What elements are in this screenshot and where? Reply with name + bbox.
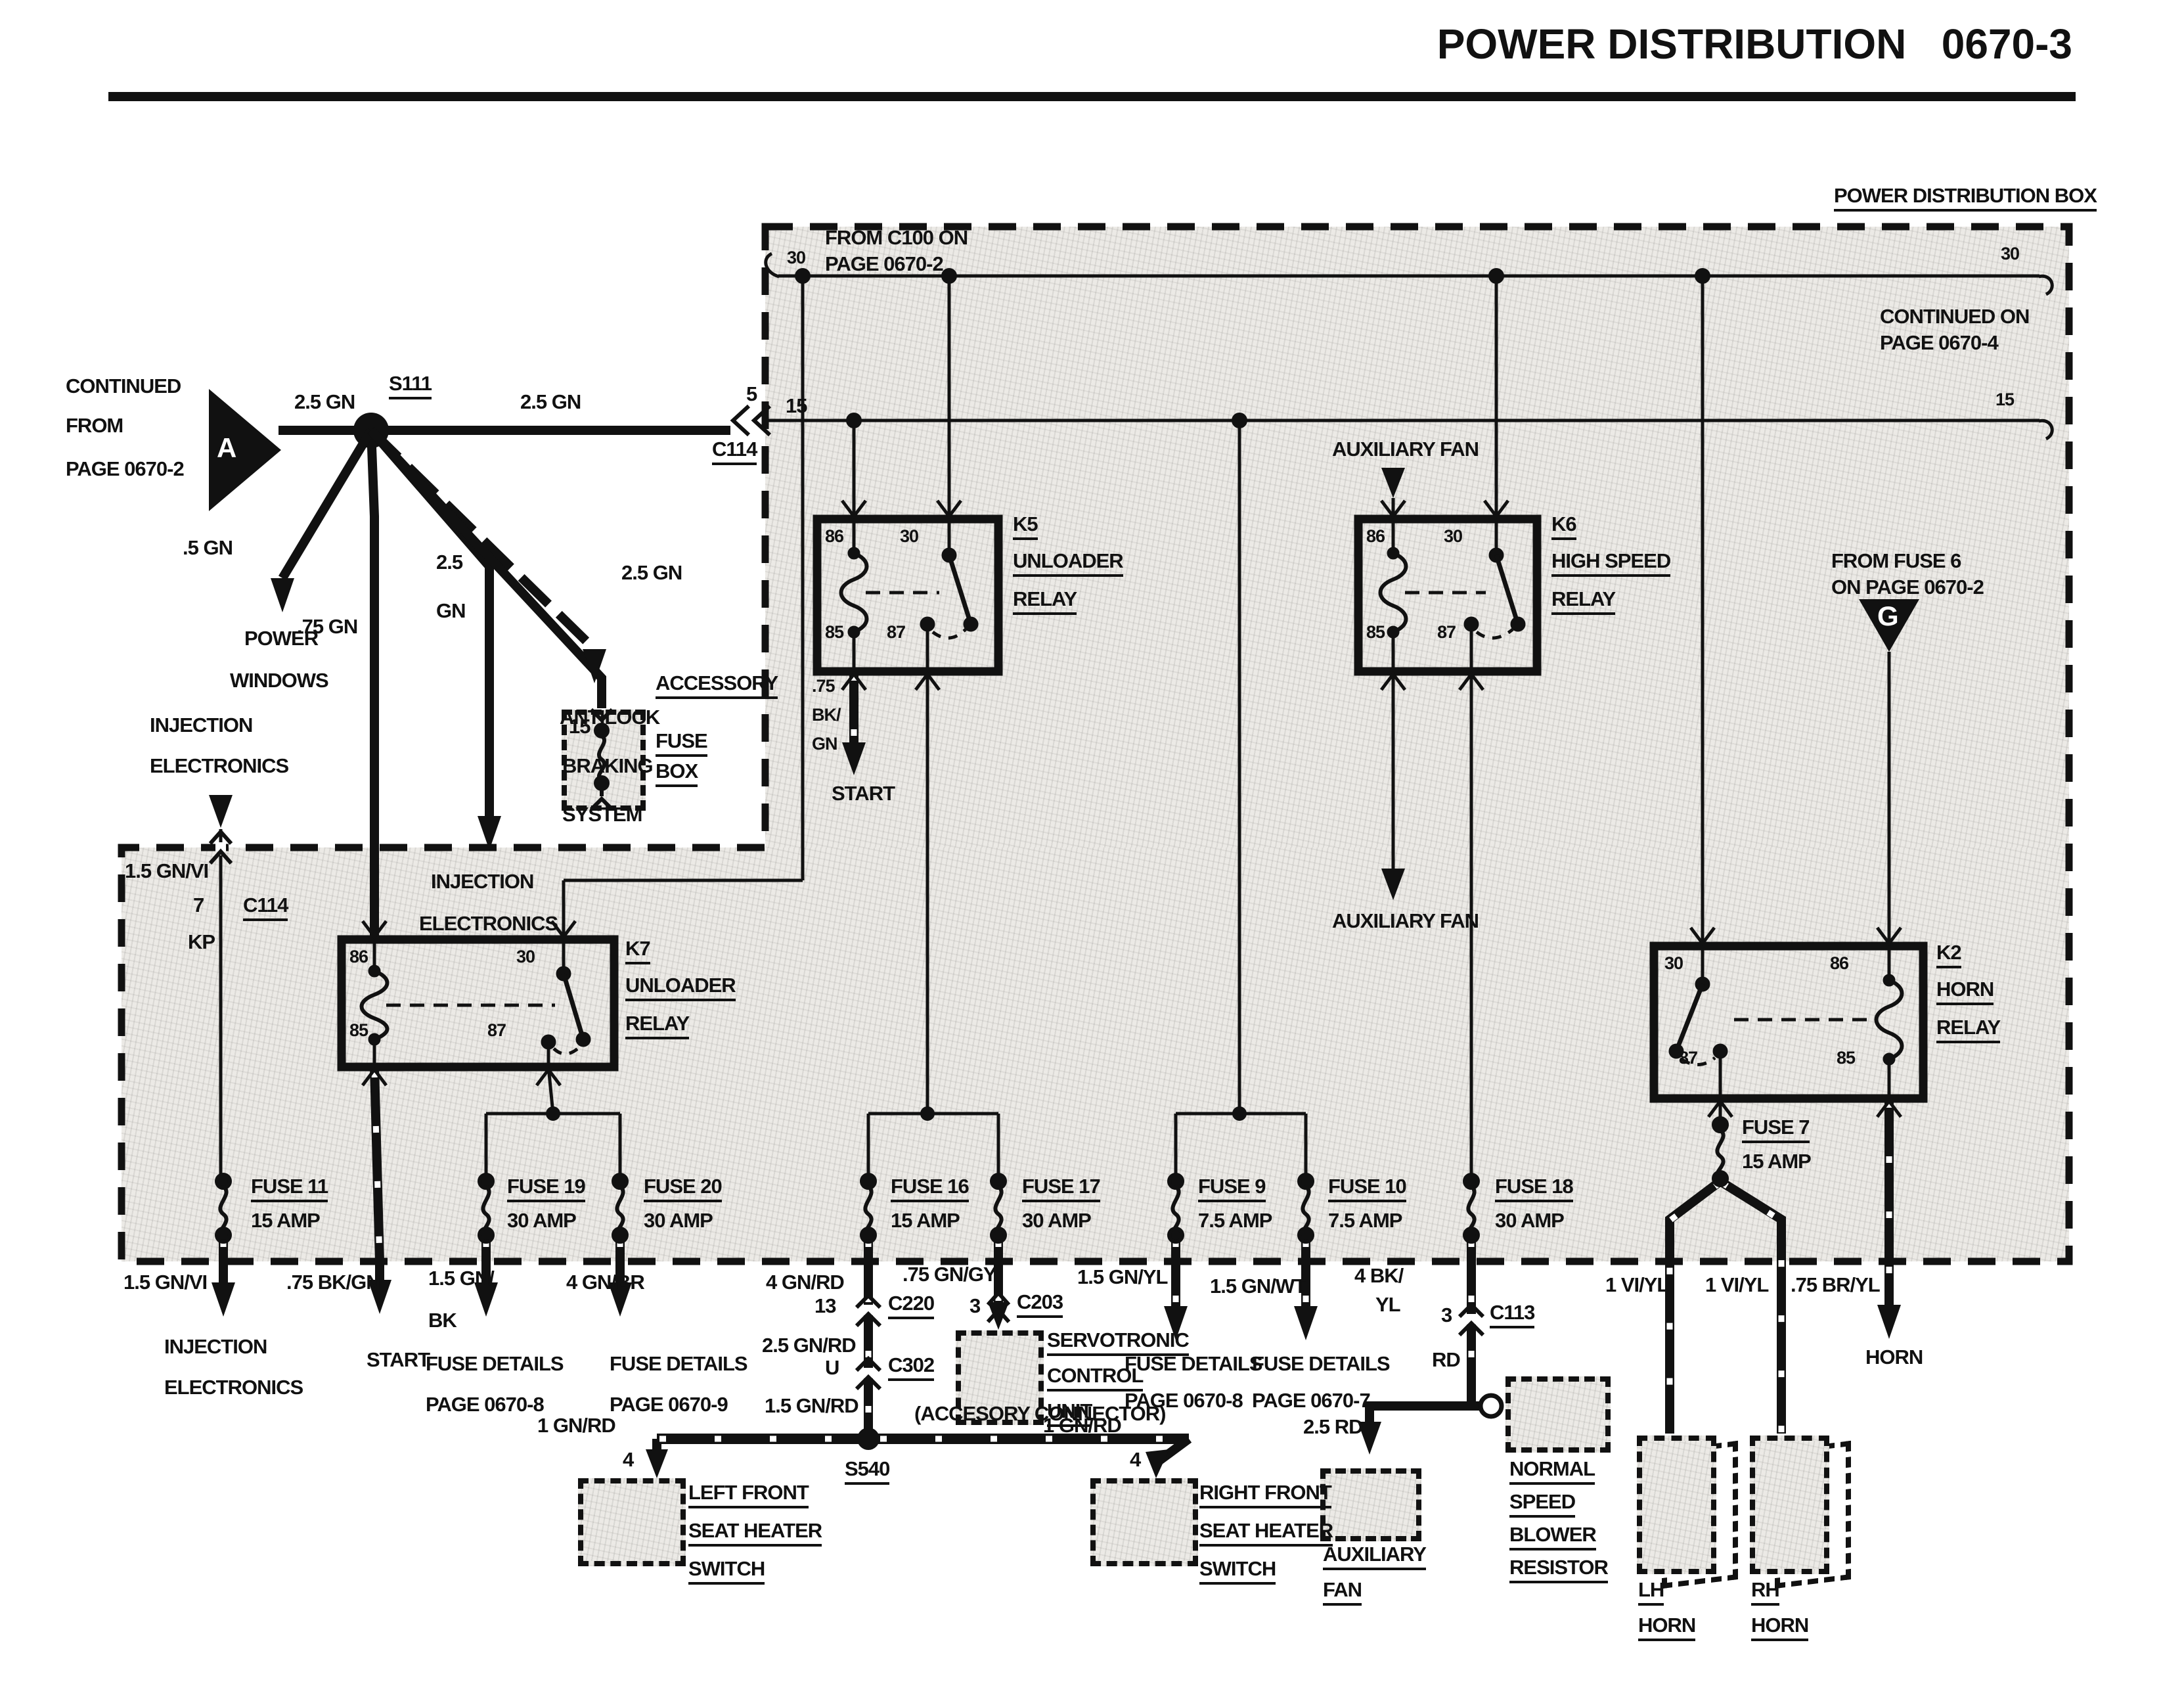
k5-out-wire-2: BK/ [812,706,841,724]
out-fuse19-wire-2: BK [428,1310,457,1332]
k6-pin85: 85 [1366,623,1385,641]
fuse17-amp: 30 AMP [1022,1210,1091,1232]
out-fuse19-wire-1: 1.5 GN/ [428,1268,494,1290]
c114-pin7-label: 7 [193,895,204,916]
out-fuse20-dest-2: PAGE 0670-9 [610,1394,728,1416]
out-fuse18-wire-1: 4 BK/ [1354,1265,1403,1287]
k6-desc-2: RELAY [1551,589,1615,615]
fuse-symbols [217,710,1727,1242]
wire-label-25gn-inj-2: GN [436,600,466,622]
wire-label-25gn-abs: 2.5 GN [621,562,682,584]
k6-name: K6 [1551,514,1576,540]
k6-auxfan-src: AUXILIARY FAN [1332,439,1479,461]
bus30-right-label: 30 [2001,244,2019,263]
c114-conn-label: C114 [712,439,757,465]
fuse-19 [479,1175,493,1242]
k5-desc-1: UNLOADER [1013,551,1123,577]
acc-fuse-box-1: ACCESSORY [656,673,778,699]
relay-k7 [342,921,614,1085]
acc-fuse-box-2: FUSE [656,731,707,757]
k2-desc-2: RELAY [1936,1017,2000,1043]
out-fuse16-wire3: 1.5 GN/RD [765,1395,858,1417]
k5-start-dest: START [832,783,895,805]
out-fuse9-dest-1: FUSE DETAILS [1125,1353,1262,1375]
k2-desc-1: HORN [1936,979,1994,1005]
fuse-11 [217,1175,230,1242]
fuse10-amp: 7.5 AMP [1328,1210,1402,1232]
fuse20-name: FUSE 20 [644,1176,722,1202]
out-fuse10-wire: 1.5 GN/WT [1210,1276,1306,1298]
seat-left-pin: 4 [623,1449,633,1471]
c220-pin: 13 [814,1296,836,1317]
inj-src-1: INJECTION [150,715,252,736]
out-fuse9-wire: 1.5 GN/YL [1077,1267,1167,1288]
injection-dest-1: INJECTION [431,871,533,893]
fuse18-amp: 30 AMP [1495,1210,1564,1232]
c113-pin: 3 [1441,1305,1452,1326]
fuse7-amp: 15 AMP [1742,1151,1811,1173]
seat-left-wire: 1 GN/RD [537,1415,615,1437]
from-fuse6-2: ON PAGE 0670-2 [1831,577,1984,599]
fuse-20 [613,1175,627,1242]
continued-from-3: PAGE 0670-2 [66,459,184,480]
blower-4: RESISTOR [1509,1557,1608,1583]
fuse-9 [1169,1175,1182,1242]
connectors [210,406,1483,1389]
from-fuse6-1: FROM FUSE 6 [1831,551,1961,572]
rh-horn-2: HORN [1751,1615,1808,1641]
marker-a-label: A [217,434,236,463]
continued-from-2: FROM [66,415,123,437]
page-title: POWER DISTRIBUTION 0670-3 [1432,22,2072,66]
fuse18-name: FUSE 18 [1495,1176,1573,1202]
k7-pin86: 86 [349,947,368,966]
fuse7-name: FUSE 7 [1742,1117,1810,1143]
k7-name: K7 [625,938,650,964]
wire-label-25gn-a: 2.5 GN [294,392,355,413]
power-box-label: POWER DISTRIBUTION BOX [1834,185,2097,212]
kp-label: KP [188,932,215,953]
blower-2: SPEED [1509,1491,1575,1518]
rh-horn-1: RH [1751,1579,1779,1606]
k5-pin30: 30 [900,527,918,545]
wire-label-75gn: .75 GN [297,616,357,638]
wire-label-15gnvi-top: 1.5 GN/VI [125,861,208,882]
k5-pin86: 86 [825,527,843,545]
c113-label: C113 [1490,1302,1534,1328]
k5-desc-2: RELAY [1013,589,1077,615]
seat-left-1: LEFT FRONT [688,1482,809,1508]
wiring-svg [0,0,2184,1697]
wire-k7-87-to-fuse19-20 [486,1067,620,1176]
wire-label-25gn-inj-1: 2.5 [436,552,462,574]
k7-desc-2: RELAY [625,1013,689,1039]
fuse17-name: FUSE 17 [1022,1176,1100,1202]
wire-fuse7-lh-horn [1670,1181,1720,1434]
k6-desc-1: HIGH SPEED [1551,551,1670,577]
fuse16-name: FUSE 16 [891,1176,969,1202]
k5-pin87: 87 [887,623,905,641]
splice-s111-label: S111 [389,373,432,399]
wire-s111-power-windows [282,430,371,578]
wire-k7-85-start [374,1067,380,1280]
out-fuse9-dest-2: PAGE 0670-8 [1125,1390,1243,1412]
fuse-16 [862,1175,875,1242]
k2-pin87: 87 [1679,1049,1697,1067]
25rd-wire-label: 2.5 RD [1303,1416,1362,1438]
wire-k5-87-to-fuse16-17 [868,671,998,1176]
from-c100-2: PAGE 0670-2 [825,254,943,275]
wire-label-5gn: .5 GN [183,537,233,559]
rh-horn-wire: 1 VI/YL [1705,1275,1768,1296]
servotronic-3: UNIT [1047,1401,1092,1427]
fuse16-amp: 15 AMP [891,1210,960,1232]
k5-out-wire-3: GN [812,735,837,753]
fuse-17 [992,1175,1005,1242]
out-fuse16-wire2: 2.5 GN/RD [762,1335,856,1357]
fuse19-amp: 30 AMP [507,1210,576,1232]
splice-s540-label: S540 [845,1459,889,1485]
c203-pin: 3 [969,1296,980,1317]
k5-pin85: 85 [825,623,843,641]
seat-right-3: SWITCH [1199,1558,1276,1585]
blower-1: NORMAL [1509,1459,1595,1485]
c220-label: C220 [888,1293,934,1319]
bus15-pin-label: 15 [786,396,807,417]
continued-on-1: CONTINUED ON [1880,306,2029,328]
seat-left-3: SWITCH [688,1558,765,1585]
k5-name: K5 [1013,514,1038,540]
k2-pin86: 86 [1830,954,1848,972]
out-start-wire: .75 BK/GN [286,1272,380,1294]
out-start-dest: START [367,1349,430,1371]
out-fuse11-dest-2: ELECTRONICS [164,1377,303,1399]
seat-left-2: SEAT HEATER [688,1520,822,1547]
c203-label: C203 [1017,1292,1063,1318]
blower-connector-circle [1481,1395,1502,1416]
k7-pin87: 87 [487,1021,506,1039]
k2-pin85: 85 [1837,1049,1855,1067]
rd-wire-label: RD [1432,1349,1460,1371]
fuse11-amp: 15 AMP [251,1210,320,1232]
fuse-18 [1465,1175,1478,1242]
out-fuse19-dest-2: PAGE 0670-8 [426,1394,544,1416]
fuse20-amp: 30 AMP [644,1210,713,1232]
seat-right-pin: 4 [1130,1449,1140,1471]
out-fuse20-wire: 4 GN/BR [566,1272,644,1294]
k7-pin85: 85 [349,1021,368,1039]
c302-label: C302 [888,1355,934,1381]
fuse9-name: FUSE 9 [1198,1176,1266,1202]
c114-pin5-label: 5 [746,384,757,405]
out-fuse10-dest-1: FUSE DETAILS [1252,1353,1390,1375]
out-fuse10-dest-2: PAGE 0670-7 [1252,1390,1370,1412]
acc-fuse-15: 15 [569,716,590,738]
bus30-left-label: 30 [787,248,805,267]
lh-horn-1: LH [1638,1579,1664,1606]
c302-pin: U [825,1357,839,1379]
k6-pin86: 86 [1366,527,1385,545]
header-rule [108,92,2076,101]
k2-name: K2 [1936,942,1961,968]
acc-fuse-box-3: BOX [656,761,698,787]
fuse-7 [1714,1118,1727,1185]
fuse-10 [1299,1175,1312,1242]
horn-wire: .75 BR/YL [1791,1275,1880,1296]
k7-pin30: 30 [516,947,535,966]
wire-bus15-to-fuse9-10 [1176,420,1306,1176]
out-fuse18-wire-2: YL [1375,1294,1400,1316]
from-c100-1: FROM C100 ON [825,227,968,249]
relay-k2 [1654,928,1923,1117]
injection-dest-2: ELECTRONICS [419,913,558,935]
fuse11-name: FUSE 11 [251,1176,328,1202]
auxfan-box-2: FAN [1323,1579,1362,1606]
auxfan-box-1: AUXILIARY [1323,1544,1426,1570]
junction-dots [353,268,1710,1450]
wire-label-25gn-b: 2.5 GN [520,392,581,413]
c114-conn7-label: C114 [243,895,288,921]
wire-fuse7-rh-horn [1720,1181,1781,1434]
power-windows-2: WINDOWS [230,670,328,692]
k6-auxfan-dest: AUXILIARY FAN [1332,911,1479,932]
wiring-diagram-page: { "colors":{"ink":"#111111","paper":"#ff… [0,0,2184,1697]
k2-pin30: 30 [1664,954,1683,972]
abs-dest-2: BRAKING [562,756,653,777]
continued-from-1: CONTINUED [66,376,181,397]
k7-desc-1: UNLOADER [625,975,736,1001]
lh-horn-2: HORN [1638,1615,1695,1641]
seat-right-1: RIGHT FRONT [1199,1482,1331,1508]
out-fuse11-dest-1: INJECTION [164,1336,267,1358]
blower-3: BLOWER [1509,1524,1596,1550]
out-fuse17-wire: .75 GN/GY [903,1264,996,1286]
seat-right-2: SEAT HEATER [1199,1520,1333,1547]
fuse9-amp: 7.5 AMP [1198,1210,1272,1232]
out-fuse19-dest-1: FUSE DETAILS [426,1353,564,1375]
bus15-right-label: 15 [1995,390,2014,409]
k5-out-wire-1: .75 [812,677,835,695]
marker-g-label: G [1877,602,1898,631]
abs-dest-3: SYSTEM [562,804,642,826]
k6-pin87: 87 [1437,623,1456,641]
k6-pin30: 30 [1444,527,1462,545]
fuse10-name: FUSE 10 [1328,1176,1406,1202]
inj-src-2: ELECTRONICS [150,756,288,777]
lh-horn-wire: 1 VI/YL [1605,1275,1668,1296]
out-fuse20-dest-1: FUSE DETAILS [610,1353,747,1375]
out-fuse16-wire: 4 GN/RD [766,1272,844,1294]
horn-dest: HORN [1865,1347,1923,1369]
wire-s111-to-k7-86 [371,430,374,937]
fuse19-name: FUSE 19 [507,1176,585,1202]
out-fuse11-wire: 1.5 GN/VI [123,1272,207,1294]
continued-on-2: PAGE 0670-4 [1880,332,1998,354]
